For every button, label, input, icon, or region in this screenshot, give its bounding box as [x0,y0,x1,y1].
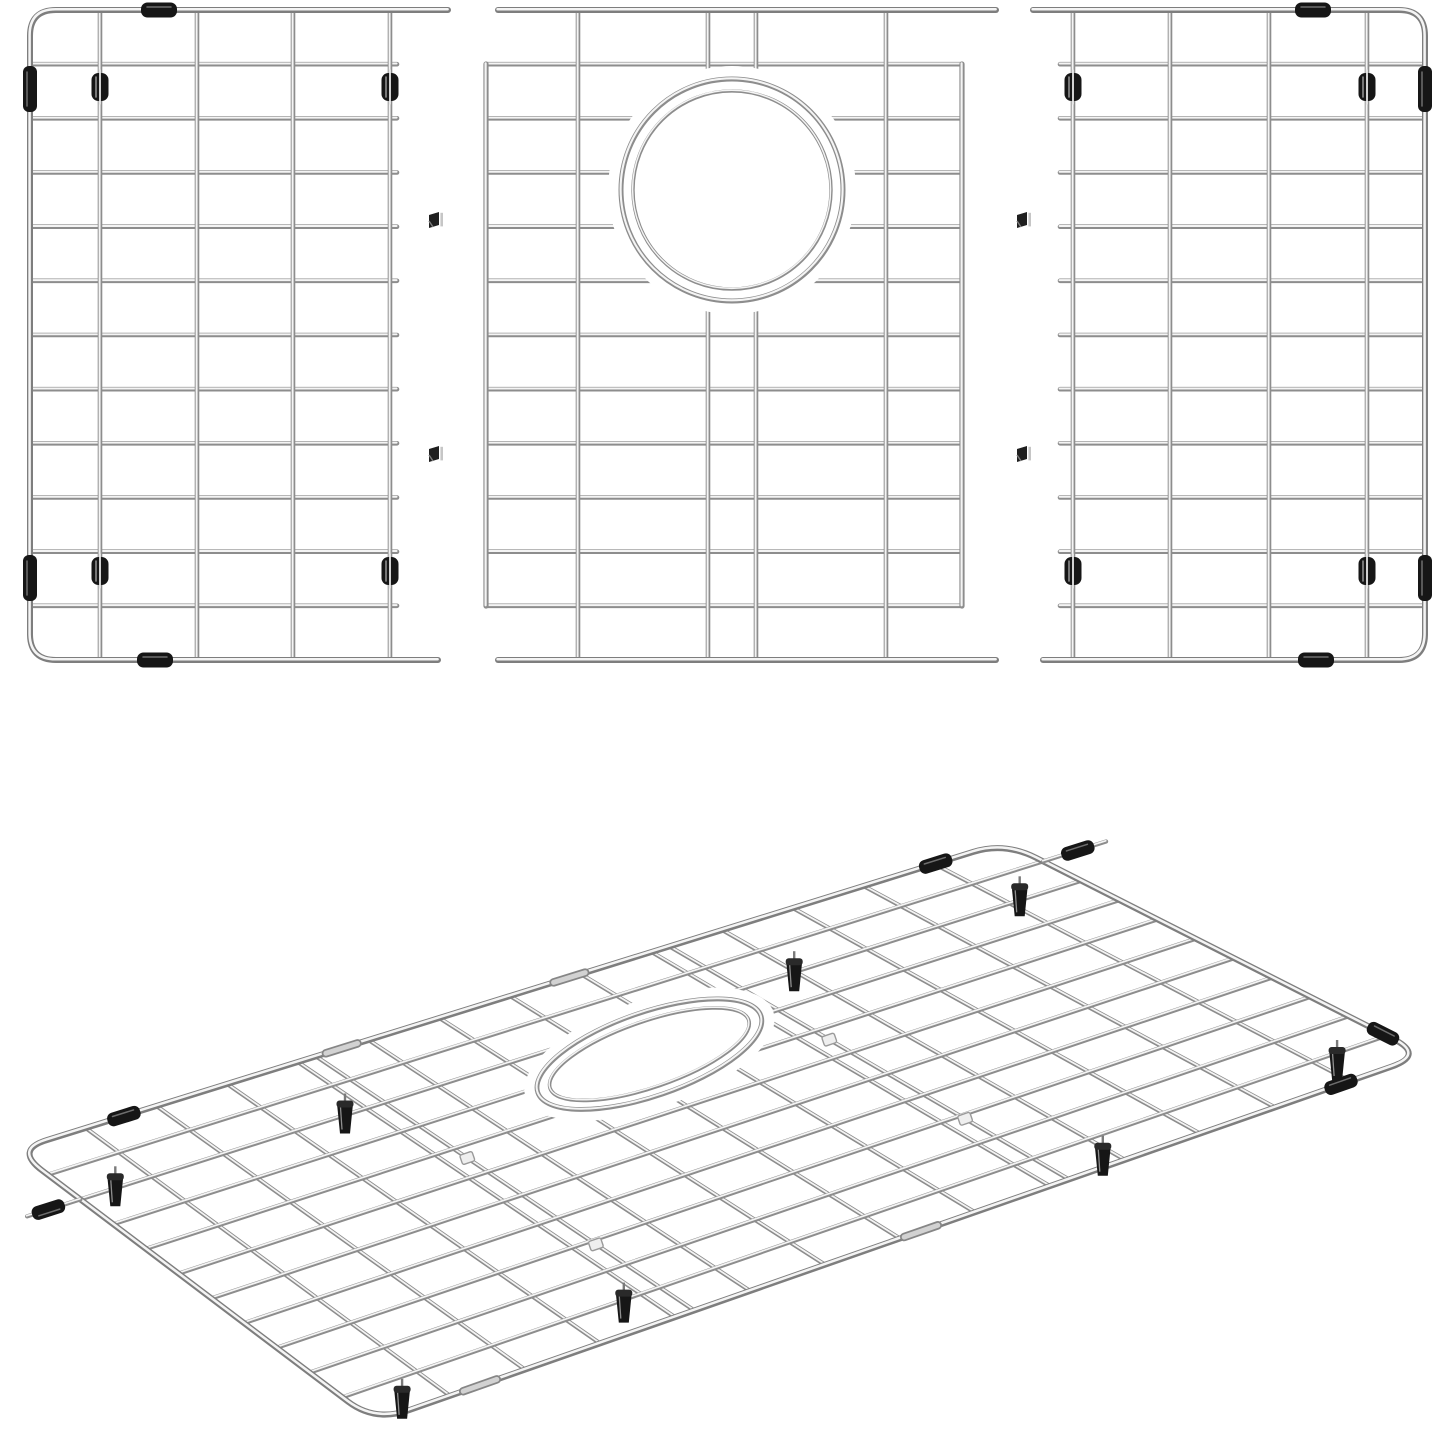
wire-sleeve [904,1225,938,1237]
edge-bumper [1418,66,1432,112]
product-photo-sink-grid [0,0,1445,1429]
panel-connector-clip [1017,212,1031,228]
right-grid-panel [1033,3,1432,668]
rubber-foot [92,70,109,104]
rubber-foot [107,1166,124,1206]
wire-sleeve [463,1379,497,1391]
rubber-foot [1359,554,1376,588]
edge-bumper [23,66,37,112]
rubber-foot [382,554,399,588]
rubber-foot [382,70,399,104]
wire-sleeve [554,973,586,983]
drain-hole-ring [621,78,843,301]
edge-bumper [30,1198,67,1222]
assembled-grid-perspective [27,839,1409,1419]
wire-sleeve [326,1043,358,1053]
edge-bumper [1418,555,1432,601]
center-grid-panel-with-drain-hole [486,9,996,660]
rubber-foot [1065,70,1082,104]
center-panel-wires [486,9,962,660]
assembled-grid-wires [47,861,1387,1398]
panel-connector-clip [1017,446,1031,462]
rubber-foot [786,951,803,991]
rail-clip [141,3,177,18]
drain-hole-ring [524,975,775,1132]
panel-connector-clip [429,446,443,462]
rail-clip [137,653,173,668]
sink-grid-illustration [0,0,1445,1429]
rail-clip [1298,653,1334,668]
edge-bumper [106,1104,143,1127]
rubber-foot [1329,1040,1346,1080]
panel-connector-clip [429,212,443,228]
rubber-foot [1065,554,1082,588]
rubber-foot [92,554,109,588]
rail-clip [1295,3,1331,18]
edge-bumper [1059,839,1096,863]
left-grid-panel [23,3,448,668]
rubber-foot [1359,70,1376,104]
edge-bumper [23,555,37,601]
